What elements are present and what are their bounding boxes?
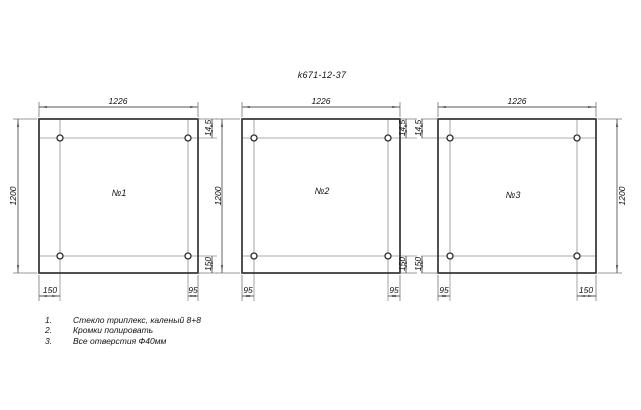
dim-hole-top: 14,5 [397,119,407,136]
dim-hole-left: 95 [439,285,449,295]
panel-2: №2 1226 1200 14,5 150 95 95 [213,96,417,301]
hole-marker [574,135,580,141]
dim-hole-bottom: 150 [397,257,407,271]
dim-hole-left: 150 [43,285,57,295]
dim-hole-bottom: 150 [413,257,423,271]
note-number: 3. [45,336,52,346]
hole-marker [447,135,453,141]
panel-outline [242,119,400,273]
note-text: Стекло триплекс, каленый 8+8 [73,315,201,325]
hole-marker [185,135,191,141]
hole-marker [251,135,257,141]
drawing-sheet: k671-12-37 №1 1226 1200 14,5 150 [0,0,641,410]
dim-hole-right: 95 [188,285,198,295]
dim-hole-bottom: 150 [203,257,213,271]
hole-marker [385,135,391,141]
dim-width: 1226 [109,96,128,106]
dim-hole-left: 95 [243,285,253,295]
dim-height: 1200 [617,186,627,205]
panel-label: №2 [315,186,330,196]
panel-3: №3 1226 1200 14,5 150 95 150 [413,96,627,301]
hole-marker [185,253,191,259]
panel-label: №3 [506,190,521,200]
dim-hole-top: 14,5 [413,119,423,136]
hole-marker [385,253,391,259]
drawing-canvas: k671-12-37 №1 1226 1200 14,5 150 [0,0,641,410]
note-text: Все отверстия Ф40мм [73,336,167,346]
hole-marker [447,253,453,259]
notes-list: 1. Стекло триплекс, каленый 8+8 2. Кромк… [44,315,201,346]
dim-hole-right: 150 [579,285,593,295]
dim-hole-right: 95 [389,285,399,295]
dim-hole-top: 14,5 [203,119,213,136]
dim-width: 1226 [312,96,331,106]
panel-1: №1 1226 1200 14,5 150 150 95 [8,96,217,301]
hole-marker [574,253,580,259]
note-number: 1. [45,315,52,325]
hole-marker [57,253,63,259]
drawing-number: k671-12-37 [298,70,347,80]
dim-height: 1200 [213,186,223,205]
hole-marker [57,135,63,141]
note-text: Кромки полировать [73,325,153,335]
dim-width: 1226 [508,96,527,106]
hole-marker [251,253,257,259]
dim-height: 1200 [8,186,18,205]
panel-label: №1 [112,188,127,198]
note-number: 2. [44,325,52,335]
